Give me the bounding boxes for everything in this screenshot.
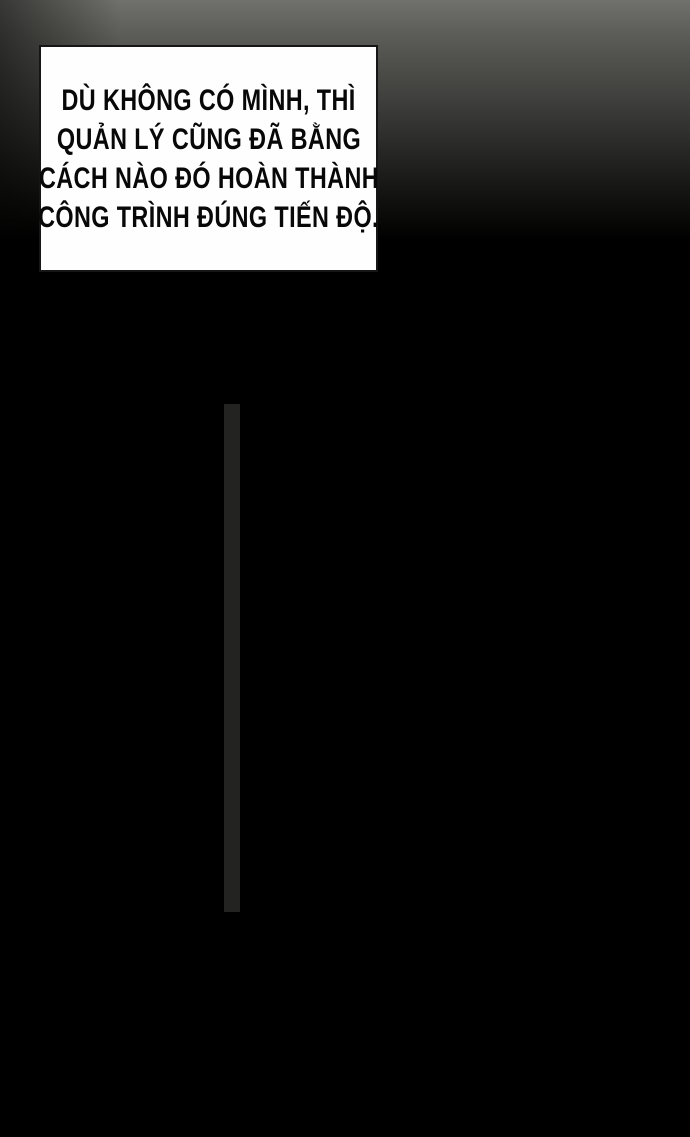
speech-line-2: QUẢN LÝ CŨNG ĐÃ BẰNG — [56, 120, 360, 159]
speech-line-3: CÁCH NÀO ĐÓ HOÀN THÀNH — [38, 159, 378, 198]
speech-line-1: DÙ KHÔNG CÓ MÌNH, THÌ — [61, 81, 355, 120]
comic-panel: DÙ KHÔNG CÓ MÌNH, THÌ QUẢN LÝ CŨNG ĐÃ BẰ… — [0, 0, 690, 1137]
speech-line-4: CÔNG TRÌNH ĐÚNG TIẾN ĐỘ. — [38, 198, 379, 237]
speech-bubble: DÙ KHÔNG CÓ MÌNH, THÌ QUẢN LÝ CŨNG ĐÃ BẰ… — [39, 45, 378, 272]
building-left-side-wall — [224, 404, 240, 912]
